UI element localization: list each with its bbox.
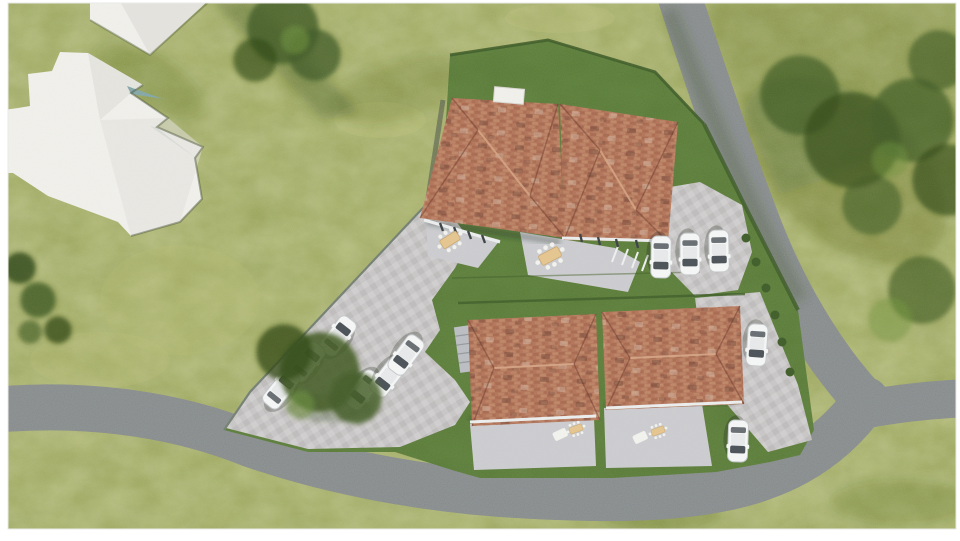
photo-grain-2 — [8, 3, 956, 529]
site-plan-canvas — [0, 0, 960, 541]
aerial-render — [0, 0, 960, 541]
